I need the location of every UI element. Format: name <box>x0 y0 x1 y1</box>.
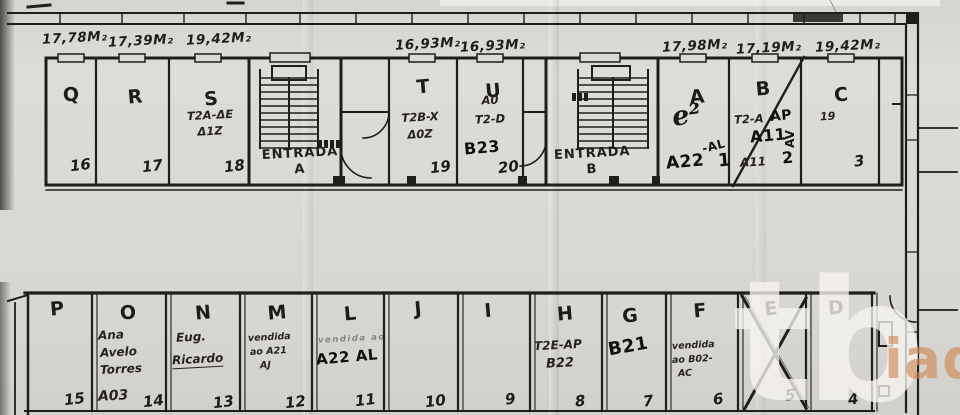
floor-plan-scan: 17,78M₂ 17,39M₂ 19,42M₂ 16,93M₂ 16,93M₂ … <box>0 0 960 415</box>
room-n-owner-line1: Eug. <box>176 329 207 345</box>
room-f-note-line1: vendida <box>672 339 715 352</box>
area-label-u: 16,93M₂ <box>460 36 526 55</box>
area-label-c: 19,42M₂ <box>815 36 881 55</box>
room-o-owner-line3: Torres <box>100 361 143 377</box>
room-l-number: 11 <box>354 390 377 410</box>
room-b-number: 2 <box>781 148 794 168</box>
room-s-number: 18 <box>223 156 246 176</box>
area-label-r: 17,39M₂ <box>108 31 174 50</box>
room-b-marker-1: AP <box>769 107 792 125</box>
room-m-note-line2: ao A21 <box>250 345 287 358</box>
room-p-letter: P <box>41 297 73 322</box>
room-a-script-note: e² <box>670 98 703 133</box>
room-t-note-2: Δ0Z <box>392 126 449 143</box>
room-f-number: 6 <box>712 389 725 408</box>
room-c-number: 3 <box>853 151 866 170</box>
room-o-letter: O <box>112 301 144 326</box>
room-g-number: 7 <box>642 391 655 410</box>
room-r-letter: R <box>119 85 151 110</box>
room-n-number: 13 <box>212 392 235 412</box>
room-h-letter: H <box>549 302 581 327</box>
room-i-letter: I <box>472 299 504 324</box>
room-m-note-line3: AJ <box>260 360 271 372</box>
room-c-small-note: 19 <box>820 110 836 124</box>
room-u-marker: B23 <box>463 136 500 158</box>
room-h-number: 8 <box>574 391 587 410</box>
room-o-owner-line2: Avelo <box>100 344 138 360</box>
room-n-letter: N <box>187 301 219 326</box>
room-a-marker: A22 <box>665 150 705 173</box>
room-b-note-2: A11 <box>740 154 767 169</box>
room-u-number: 20 <box>497 157 520 177</box>
room-t-number: 19 <box>429 157 452 177</box>
room-u-note-2: T2-D <box>462 111 519 128</box>
room-m-number: 12 <box>284 392 307 412</box>
room-a-number: 1 <box>717 149 732 171</box>
iad-watermark-brand: iad <box>884 332 960 387</box>
room-b-letter: B <box>747 77 779 102</box>
room-q-number: 16 <box>69 155 92 175</box>
area-label-b: 17,19M₂ <box>736 38 802 57</box>
room-q-letter: Q <box>55 83 87 108</box>
room-h-note-line1: T2E-AP <box>534 337 582 353</box>
room-f-letter: F <box>684 299 716 324</box>
room-b-side-note: AV <box>783 130 797 148</box>
room-c-letter: C <box>825 83 857 108</box>
room-b-note-1: T2-A <box>734 111 764 127</box>
area-label-q: 17,78M₂ <box>42 28 108 47</box>
room-u-note-1: A0 <box>470 92 511 108</box>
room-o-number: 14 <box>142 391 165 411</box>
room-m-note-line1: vendida <box>248 331 291 344</box>
area-label-a: 17,98M₂ <box>662 36 728 55</box>
room-b-marker-2: A11 <box>749 124 787 146</box>
room-t-note-1: T2B-X <box>392 109 449 126</box>
room-i-number: 9 <box>504 389 517 408</box>
room-r-number: 17 <box>141 156 164 176</box>
room-p-number: 15 <box>63 389 86 409</box>
room-o-code: A03 <box>98 387 129 405</box>
area-label-t: 16,93M₂ <box>395 34 461 53</box>
room-j-letter: J <box>402 297 434 322</box>
room-n-owner-line2: Ricardo <box>172 351 224 370</box>
room-f-note-line3: AC <box>678 368 693 380</box>
room-f-note-line2: ao B02- <box>672 353 713 366</box>
room-j-number: 10 <box>424 391 447 411</box>
room-g-letter: G <box>614 304 646 329</box>
room-o-owner-line1: Ana <box>98 327 125 342</box>
room-h-note-line2: B22 <box>546 355 575 371</box>
room-t-letter: T <box>407 75 439 100</box>
room-m-letter: M <box>261 301 293 326</box>
room-l-letter: L <box>334 302 366 327</box>
area-label-s: 19,42M₂ <box>186 29 252 48</box>
